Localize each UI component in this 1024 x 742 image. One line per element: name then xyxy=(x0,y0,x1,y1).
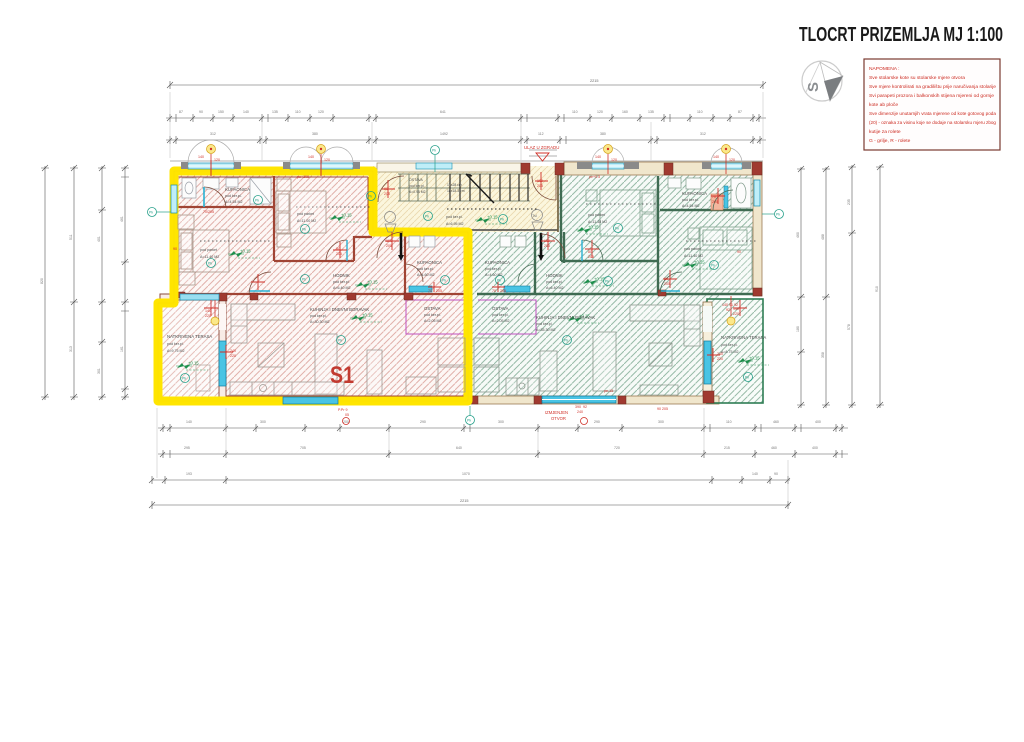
svg-text:140 91 92: 140 91 92 xyxy=(722,303,738,307)
svg-text:290: 290 xyxy=(420,420,426,424)
svg-text:161: 161 xyxy=(120,346,124,352)
svg-text:KUHINJA I DNEVNI BORAVAK: KUHINJA I DNEVNI BORAVAK xyxy=(310,307,369,312)
svg-text:OSTAVA: OSTAVA xyxy=(492,306,509,311)
svg-text:140: 140 xyxy=(186,420,192,424)
svg-text:110: 110 xyxy=(697,110,703,114)
svg-text:641: 641 xyxy=(440,110,446,114)
svg-text:05: 05 xyxy=(345,413,349,417)
svg-text:A=35.30 M2: A=35.30 M2 xyxy=(536,328,555,332)
svg-text:A=9.75 M2: A=9.75 M2 xyxy=(167,349,184,353)
svg-text:pod parket: pod parket xyxy=(200,248,217,252)
svg-text:NATKRIVENA TERASA: NATKRIVENA TERASA xyxy=(721,335,766,340)
svg-text:110: 110 xyxy=(572,110,578,114)
svg-text:A=4.54 M2: A=4.54 M2 xyxy=(225,200,242,204)
svg-text:OSTAVA: OSTAVA xyxy=(409,178,423,182)
svg-text:ULAZ U ZGRADU: ULAZ U ZGRADU xyxy=(524,145,559,150)
svg-text:112: 112 xyxy=(538,132,544,136)
svg-text:312: 312 xyxy=(700,132,706,136)
svg-text:A=8.75 M2: A=8.75 M2 xyxy=(721,350,738,354)
svg-text:pe-15: pe-15 xyxy=(604,389,613,393)
svg-text:705: 705 xyxy=(300,446,306,450)
svg-text:18x18.3 cm: 18x18.3 cm xyxy=(447,189,465,193)
svg-text:220: 220 xyxy=(230,354,236,358)
svg-text:720: 720 xyxy=(614,446,620,450)
svg-text:pod parket: pod parket xyxy=(684,247,701,251)
svg-text:300: 300 xyxy=(658,420,664,424)
svg-text:S: S xyxy=(805,82,822,92)
svg-text:578: 578 xyxy=(847,324,851,330)
svg-text:511: 511 xyxy=(69,234,73,240)
svg-text:Sve stolarske kote su stolarsk: Sve stolarske kote su stolarske mjere ot… xyxy=(869,75,965,81)
svg-text:140: 140 xyxy=(752,472,758,476)
svg-text:120: 120 xyxy=(214,158,220,162)
svg-text:A=6.40 M2: A=6.40 M2 xyxy=(546,286,563,290)
svg-text:135: 135 xyxy=(648,110,654,114)
svg-text:KUHINJA I DNEVNI BORAVAK: KUHINJA I DNEVNI BORAVAK xyxy=(536,315,595,320)
svg-text:A=11.40 M2: A=11.40 M2 xyxy=(684,254,703,258)
svg-text:pod ker.pl.: pod ker.pl. xyxy=(536,322,553,326)
svg-text:pod ker.pl.: pod ker.pl. xyxy=(492,313,509,317)
svg-text:TLOCRT PRIZEMLJA MJ 1:100: TLOCRT PRIZEMLJA MJ 1:100 xyxy=(799,24,1003,46)
svg-text:pod ker.pl.: pod ker.pl. xyxy=(682,198,699,202)
svg-text:358: 358 xyxy=(821,352,825,358)
svg-text:70/205: 70/205 xyxy=(203,210,214,214)
svg-text:110: 110 xyxy=(295,110,301,114)
svg-text:2215: 2215 xyxy=(460,499,468,503)
svg-text:A=11.38 M2: A=11.38 M2 xyxy=(588,220,607,224)
svg-text:1070: 1070 xyxy=(462,472,470,476)
svg-text:pod ker.pl.: pod ker.pl. xyxy=(721,343,738,347)
svg-text:120: 120 xyxy=(324,158,330,162)
svg-text:Sve mjere kontrolirati na grad: Sve mjere kontrolirati na gradilištu pri… xyxy=(869,84,996,90)
svg-text:205: 205 xyxy=(384,192,390,196)
svg-text:pod ker.pl.: pod ker.pl. xyxy=(485,267,502,271)
svg-text:140: 140 xyxy=(308,155,314,159)
svg-text:80: 80 xyxy=(588,250,592,254)
svg-text:NATKRIVENA TERASA: NATKRIVENA TERASA xyxy=(167,334,212,339)
svg-text:135: 135 xyxy=(272,110,278,114)
svg-text:193: 193 xyxy=(186,472,192,476)
svg-text:Sve dimenzije unutarnjih vrata: Sve dimenzije unutarnjih vrata mjerene o… xyxy=(869,111,996,117)
svg-text:90: 90 xyxy=(199,110,203,114)
svg-text:pod ker.pl.: pod ker.pl. xyxy=(417,267,434,271)
svg-text:205: 205 xyxy=(500,289,506,293)
svg-text:205: 205 xyxy=(588,255,594,259)
svg-text:235: 235 xyxy=(847,199,851,205)
svg-text:90: 90 xyxy=(774,472,778,476)
svg-text:kote ab ploče: kote ab ploče xyxy=(869,102,898,108)
svg-text:pod ker.pl.: pod ker.pl. xyxy=(424,313,441,317)
svg-text:312: 312 xyxy=(210,132,216,136)
svg-text:295: 295 xyxy=(184,446,190,450)
svg-text:488: 488 xyxy=(821,234,825,240)
svg-text:NAPOMENA :: NAPOMENA : xyxy=(869,66,899,72)
svg-text:300: 300 xyxy=(260,420,266,424)
svg-text:90: 90 xyxy=(737,250,741,254)
svg-text:17x28 cm: 17x28 cm xyxy=(447,183,462,187)
svg-text:205: 205 xyxy=(386,244,392,248)
svg-text:A=6.95 M2: A=6.95 M2 xyxy=(446,222,463,226)
svg-text:240: 240 xyxy=(577,410,583,414)
svg-text:2215: 2215 xyxy=(590,79,598,83)
svg-text:70: 70 xyxy=(428,289,432,293)
svg-text:Tsl: Tsl xyxy=(532,213,537,218)
svg-text:180: 180 xyxy=(796,326,800,332)
svg-text:301: 301 xyxy=(97,368,101,374)
svg-text:pod parket: pod parket xyxy=(297,212,314,216)
svg-text:1492: 1492 xyxy=(440,132,448,136)
svg-text:IZMJENJEN: IZMJENJEN xyxy=(545,410,568,415)
svg-text:A=0.95 M2: A=0.95 M2 xyxy=(409,190,426,194)
svg-text:401: 401 xyxy=(97,236,101,242)
svg-text:640: 640 xyxy=(456,446,462,450)
svg-text:70: 70 xyxy=(492,289,496,293)
svg-text:400: 400 xyxy=(812,446,818,450)
svg-text:KUPAONICA: KUPAONICA xyxy=(485,260,510,265)
svg-text:pod ker.pl.: pod ker.pl. xyxy=(333,280,350,284)
svg-text:460: 460 xyxy=(773,420,779,424)
svg-text:390: 390 xyxy=(575,405,581,409)
svg-text:pod ker.pl.: pod ker.pl. xyxy=(167,342,184,346)
svg-text:pod ker.pl.: pod ker.pl. xyxy=(409,184,425,188)
svg-text:205: 205 xyxy=(436,289,442,293)
svg-text:380: 380 xyxy=(312,132,318,136)
svg-text:460: 460 xyxy=(796,232,800,238)
svg-text:205: 205 xyxy=(537,184,543,188)
svg-text:120: 120 xyxy=(597,110,603,114)
svg-text:150: 150 xyxy=(218,110,224,114)
svg-text:OSTAVA: OSTAVA xyxy=(424,306,441,311)
svg-text:380: 380 xyxy=(600,132,606,136)
svg-text:461: 461 xyxy=(120,216,124,222)
svg-text:kutije za rolete: kutije za rolete xyxy=(869,129,901,135)
svg-text:140: 140 xyxy=(198,155,204,159)
svg-text:120: 120 xyxy=(729,158,735,162)
svg-text:OTVOR: OTVOR xyxy=(551,416,566,421)
svg-text:A=4.60 M2: A=4.60 M2 xyxy=(485,273,502,277)
svg-text:Svi parapeti prozora i balkons: Svi parapeti prozora i balkonskih stijen… xyxy=(869,93,994,99)
svg-text:400: 400 xyxy=(815,420,821,424)
svg-text:90: 90 xyxy=(173,247,177,251)
svg-text:313: 313 xyxy=(69,346,73,352)
svg-text:140: 140 xyxy=(243,110,249,114)
svg-text:KUPAONICA: KUPAONICA xyxy=(225,187,250,192)
svg-text:220: 220 xyxy=(717,357,723,361)
svg-text:A=6.40 M2: A=6.40 M2 xyxy=(333,286,350,290)
svg-text:205: 205 xyxy=(544,244,550,248)
svg-text:90 205: 90 205 xyxy=(657,407,668,411)
svg-text:pe+0.5: pe+0.5 xyxy=(589,175,600,179)
svg-text:87: 87 xyxy=(738,110,742,114)
svg-text:HODNIK: HODNIK xyxy=(546,273,563,278)
svg-text:G - grilje, R - rolete: G - grilje, R - rolete xyxy=(869,138,911,144)
svg-text:A=4.60 M2: A=4.60 M2 xyxy=(417,273,434,277)
svg-text:pod ker.pl.: pod ker.pl. xyxy=(225,194,242,198)
svg-text:92: 92 xyxy=(583,405,587,409)
svg-text:140: 140 xyxy=(595,155,601,159)
svg-text:120: 120 xyxy=(611,158,617,162)
svg-text:87: 87 xyxy=(179,110,183,114)
svg-text:110: 110 xyxy=(726,420,732,424)
svg-text:pod parket: pod parket xyxy=(588,213,605,217)
svg-text:300: 300 xyxy=(498,420,504,424)
svg-text:pod ker.pl.: pod ker.pl. xyxy=(446,215,463,219)
svg-text:910: 910 xyxy=(875,286,879,292)
svg-text:160: 160 xyxy=(622,110,628,114)
svg-text:120: 120 xyxy=(318,110,324,114)
svg-text:KUPAONICA: KUPAONICA xyxy=(417,260,442,265)
svg-text:(20) - oznaka za visinu koje s: (20) - oznaka za visinu koje se dodaje n… xyxy=(869,120,996,126)
svg-text:A=11.00 M2: A=11.00 M2 xyxy=(297,219,316,223)
svg-text:A=30.30 M2: A=30.30 M2 xyxy=(310,320,329,324)
svg-text:P.Pr 9: P.Pr 9 xyxy=(338,408,348,412)
svg-text:pod ker.pl.: pod ker.pl. xyxy=(546,280,563,284)
svg-text:220: 220 xyxy=(733,312,739,316)
svg-text:205: 205 xyxy=(336,252,342,256)
svg-text:A=11.40 M2: A=11.40 M2 xyxy=(200,255,219,259)
svg-text:92: 92 xyxy=(726,308,730,312)
svg-text:S1: S1 xyxy=(330,362,354,389)
svg-text:A=2.05 M2: A=2.05 M2 xyxy=(492,319,509,323)
svg-text:140: 140 xyxy=(205,309,211,313)
svg-text:pod ker.pl.: pod ker.pl. xyxy=(310,314,327,318)
svg-text:140: 140 xyxy=(713,155,719,159)
svg-text:pe+105: pe+105 xyxy=(297,175,309,179)
svg-text:205: 205 xyxy=(712,200,718,204)
svg-text:220: 220 xyxy=(205,314,211,318)
svg-text:HODNIK: HODNIK xyxy=(333,273,350,278)
svg-text:820: 820 xyxy=(40,278,44,284)
svg-text:205: 205 xyxy=(664,282,670,286)
svg-text:A=4.54 M2: A=4.54 M2 xyxy=(682,204,699,208)
svg-text:KUPAONICA: KUPAONICA xyxy=(682,191,707,196)
svg-text:460: 460 xyxy=(771,446,777,450)
svg-text:215: 215 xyxy=(724,446,730,450)
svg-text:290: 290 xyxy=(594,420,600,424)
svg-text:A=2.05 M2: A=2.05 M2 xyxy=(424,319,441,323)
